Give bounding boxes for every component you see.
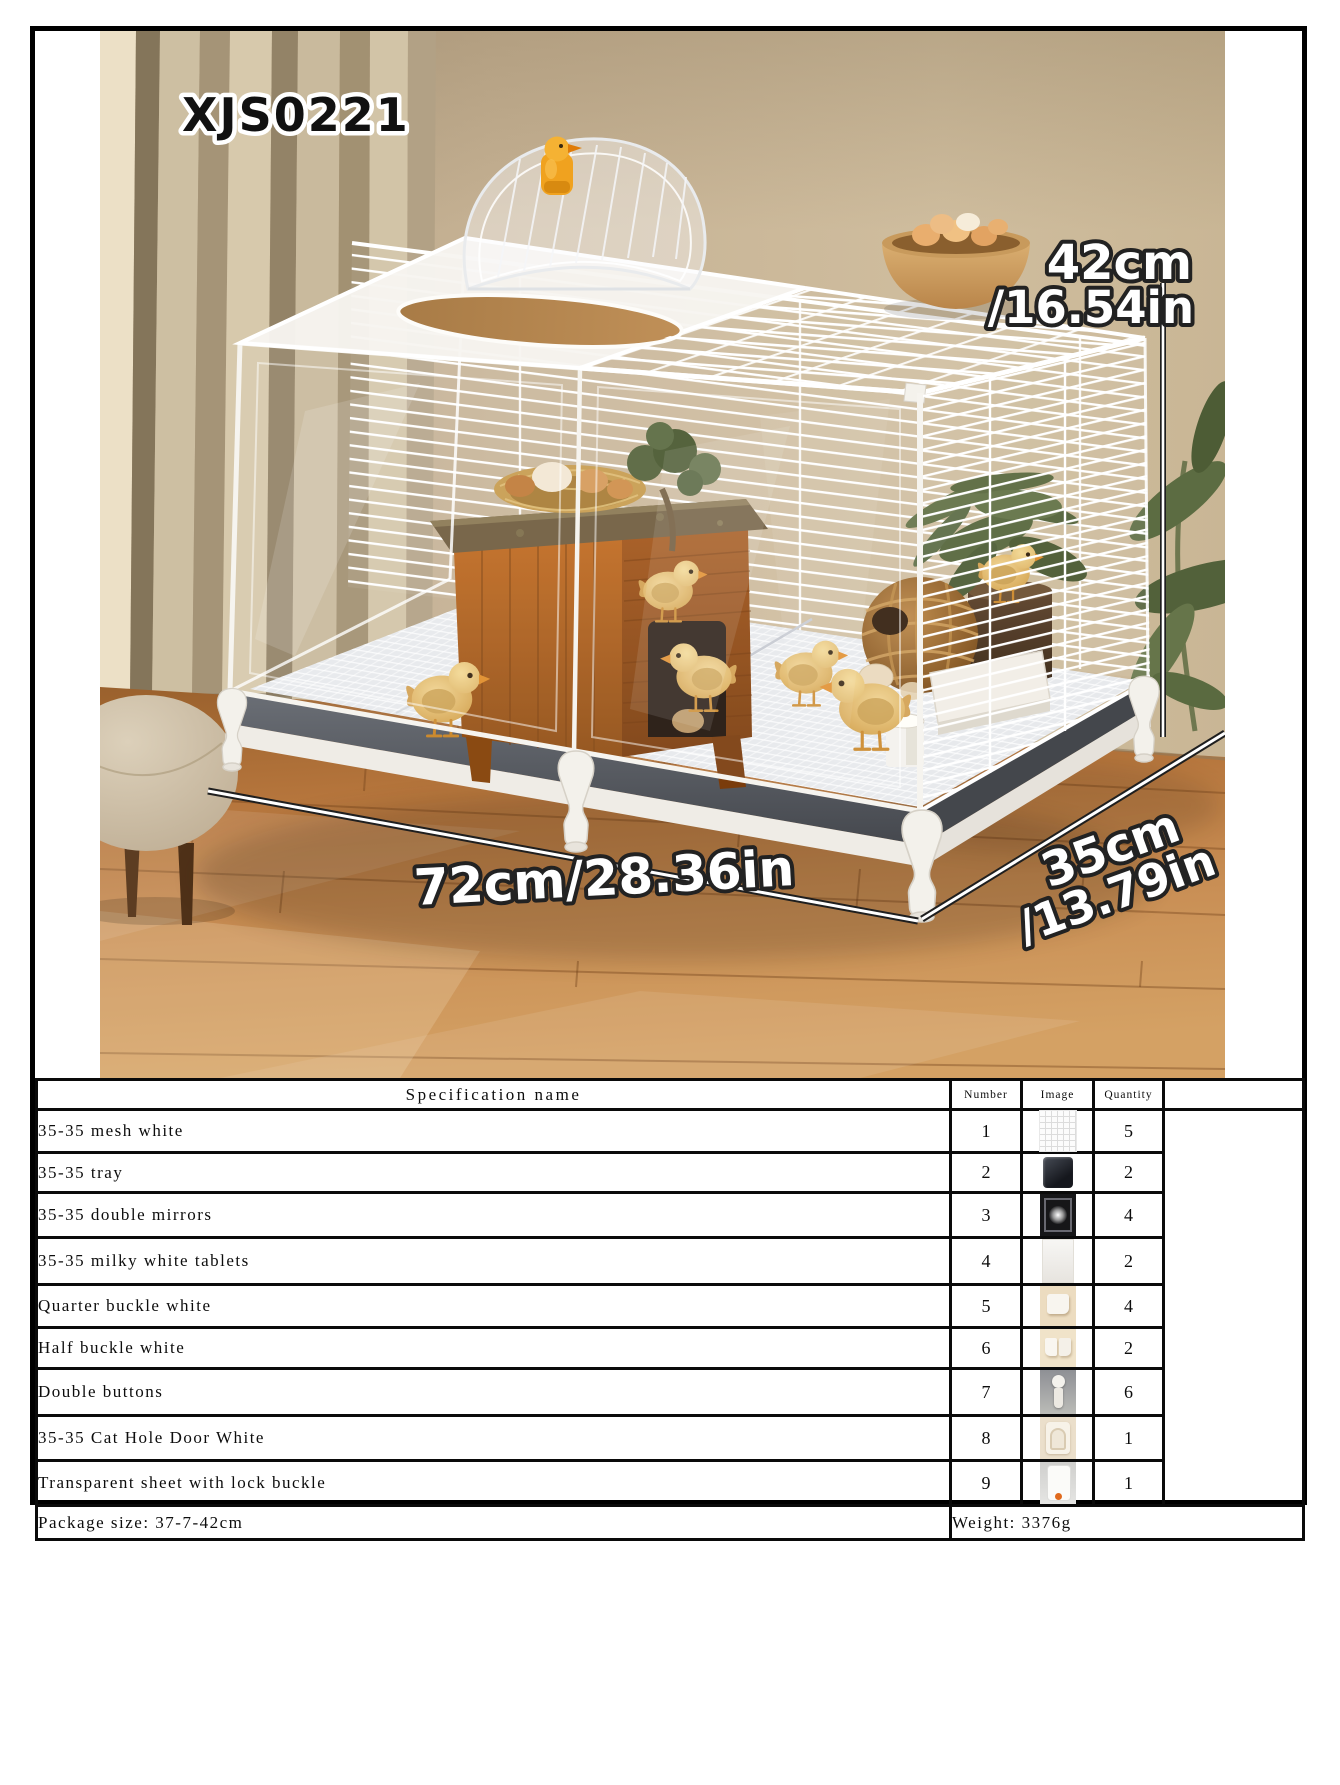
spec-row-3: 35-35 double mirrors 3 4 xyxy=(37,1193,1304,1238)
spec-row-6: Half buckle white 6 2 xyxy=(37,1328,1304,1369)
photo-svg: XJS0221 42cm /16.54in 72cm/28.36in 35cm … xyxy=(100,31,1225,1078)
mesh-panel-thumb xyxy=(1040,1111,1076,1151)
spec-quantity: 1 xyxy=(1094,1416,1164,1461)
spec-row-2: 35-35 tray 2 2 xyxy=(37,1153,1304,1193)
spec-name: Double buttons xyxy=(37,1369,951,1416)
spec-number: 7 xyxy=(951,1369,1022,1416)
spec-number: 8 xyxy=(951,1416,1022,1461)
product-photo: XJS0221 42cm /16.54in 72cm/28.36in 35cm … xyxy=(100,31,1225,1078)
cat-door-thumb xyxy=(1040,1417,1076,1459)
spec-image-cell xyxy=(1022,1369,1094,1416)
spec-row-8: 35-35 Cat Hole Door White 8 1 xyxy=(37,1416,1304,1461)
spec-name: Half buckle white xyxy=(37,1328,951,1369)
spec-quantity: 1 xyxy=(1094,1461,1164,1506)
milky-panel-thumb xyxy=(1042,1239,1074,1283)
col-header-number: Number xyxy=(951,1080,1022,1110)
half-buckle-thumb xyxy=(1040,1329,1076,1367)
weight-cell: Weight: 3376g xyxy=(951,1506,1304,1540)
spec-image-cell xyxy=(1022,1193,1094,1238)
spec-quantity: 2 xyxy=(1094,1238,1164,1285)
spec-quantity: 4 xyxy=(1094,1193,1164,1238)
spec-row-4: 35-35 milky white tablets 4 2 xyxy=(37,1238,1304,1285)
spec-quantity: 2 xyxy=(1094,1328,1164,1369)
spec-image-cell xyxy=(1022,1461,1094,1506)
spec-name: 35-35 Cat Hole Door White xyxy=(37,1416,951,1461)
spec-quantity: 2 xyxy=(1094,1153,1164,1193)
tray-thumb xyxy=(1043,1157,1073,1188)
spec-table: Specification name Number Image Quantity… xyxy=(35,1078,1305,1541)
spec-image-cell xyxy=(1022,1328,1094,1369)
lock-sheet-thumb xyxy=(1040,1462,1076,1504)
spec-image-cell xyxy=(1022,1238,1094,1285)
spec-quantity: 5 xyxy=(1094,1110,1164,1153)
col-header-empty xyxy=(1164,1080,1304,1110)
spec-number: 4 xyxy=(951,1238,1022,1285)
spec-number: 2 xyxy=(951,1153,1022,1193)
spec-image-cell xyxy=(1022,1110,1094,1153)
double-button-thumb xyxy=(1040,1370,1076,1414)
col-header-image: Image xyxy=(1022,1080,1094,1110)
spec-quantity: 6 xyxy=(1094,1369,1164,1416)
spec-side-empty-cell xyxy=(1164,1110,1304,1506)
spec-row-7: Double buttons 7 6 xyxy=(37,1369,1304,1416)
spec-header-row: Specification name Number Image Quantity xyxy=(37,1080,1304,1110)
spec-name: Transparent sheet with lock buckle xyxy=(37,1461,951,1506)
spec-name: Quarter buckle white xyxy=(37,1285,951,1328)
spec-row-1: 35-35 mesh white 1 5 xyxy=(37,1110,1304,1153)
spec-number: 3 xyxy=(951,1193,1022,1238)
spec-number: 1 xyxy=(951,1110,1022,1153)
spec-number: 6 xyxy=(951,1328,1022,1369)
col-header-quantity: Quantity xyxy=(1094,1080,1164,1110)
spec-number: 9 xyxy=(951,1461,1022,1506)
spec-image-cell xyxy=(1022,1285,1094,1328)
spec-number: 5 xyxy=(951,1285,1022,1328)
col-header-spec-name: Specification name xyxy=(37,1080,951,1110)
spec-name: 35-35 milky white tablets xyxy=(37,1238,951,1285)
spec-name: 35-35 double mirrors xyxy=(37,1193,951,1238)
spec-image-cell xyxy=(1022,1153,1094,1193)
spec-quantity: 4 xyxy=(1094,1285,1164,1328)
package-size-cell: Package size: 37-7-42cm xyxy=(37,1506,951,1540)
spec-footer-row: Package size: 37-7-42cm Weight: 3376g xyxy=(37,1506,1304,1540)
height-label-in: /16.54in xyxy=(988,281,1194,334)
model-label: XJS0221 xyxy=(182,88,410,142)
mirror-panel-thumb xyxy=(1040,1194,1076,1236)
spec-name: 35-35 mesh white xyxy=(37,1110,951,1153)
quarter-buckle-thumb xyxy=(1040,1286,1076,1326)
outer-frame: XJS0221 42cm /16.54in 72cm/28.36in 35cm … xyxy=(30,26,1307,1505)
spec-name: 35-35 tray xyxy=(37,1153,951,1193)
spec-row-5: Quarter buckle white 5 4 xyxy=(37,1285,1304,1328)
spec-image-cell xyxy=(1022,1416,1094,1461)
spec-row-9: Transparent sheet with lock buckle 9 1 xyxy=(37,1461,1304,1506)
